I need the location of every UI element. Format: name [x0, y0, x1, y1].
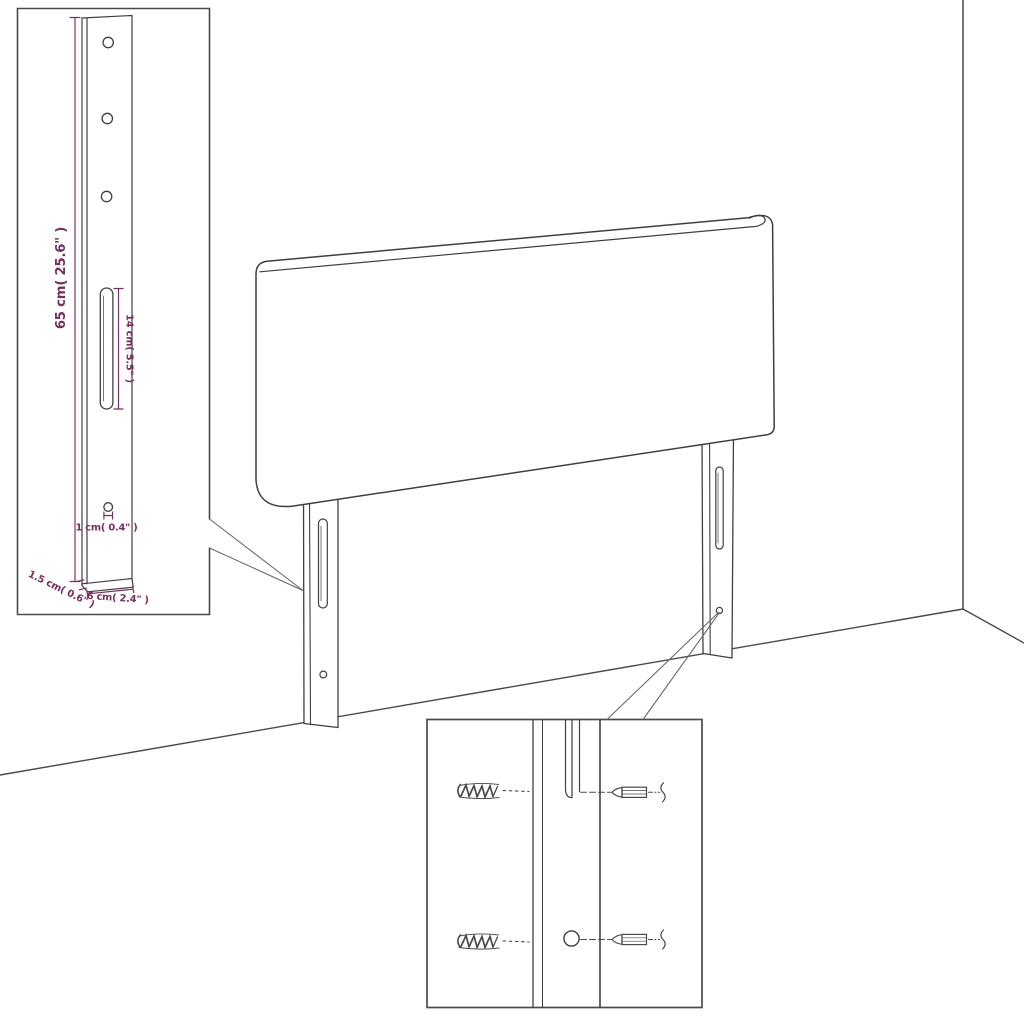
- leg-detail-inset: 65 cm( 25.6" ) 14 cm( 5.5" ) 1 cm( 0.4" …: [18, 9, 210, 615]
- right-leg-edge-line: [710, 437, 711, 655]
- headboard-dimension-diagram: 65 cm( 25.6" ) 14 cm( 5.5" ) 1 cm( 0.4" …: [0, 0, 1024, 1024]
- floor-edge-right: [963, 609, 1024, 643]
- left-mounting-leg: [304, 490, 339, 728]
- hole-diameter-dimension-label: 1 cm( 0.4" ): [75, 523, 137, 534]
- mounting-inset-leader-line-left: [607, 612, 719, 720]
- leg-height-dimension-label: 65 cm( 25.6" ): [54, 227, 69, 329]
- diagram-canvas: 65 cm( 25.6" ) 14 cm( 5.5" ) 1 cm( 0.4" …: [0, 0, 1024, 1024]
- mounting-detail-inset: [427, 720, 702, 1008]
- headboard-panel: [256, 215, 774, 506]
- mounting-inset-leader-line-right: [643, 613, 720, 720]
- mounting-detail-inset-border: [427, 720, 702, 1008]
- headboard: [256, 215, 774, 506]
- slot-length-dimension-label: 14 cm( 5.5" ): [124, 314, 135, 383]
- left-leg-body: [304, 490, 339, 728]
